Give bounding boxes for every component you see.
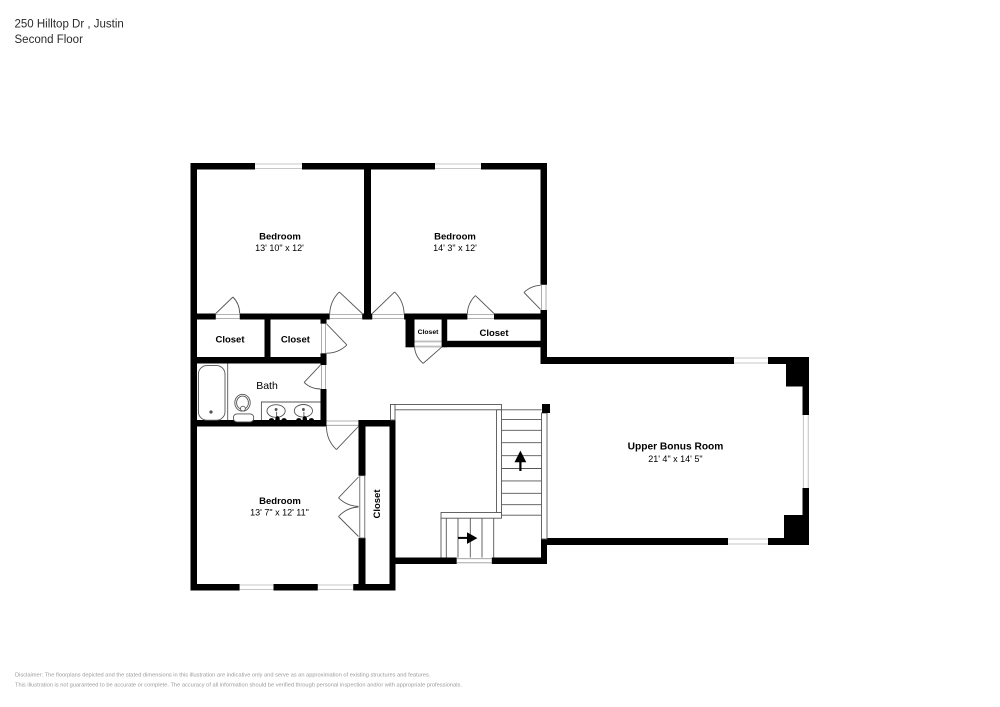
svg-text:Closet: Closet — [215, 334, 245, 345]
svg-text:13' 7" x 12' 11": 13' 7" x 12' 11" — [250, 508, 309, 518]
svg-text:Closet: Closet — [281, 334, 311, 345]
svg-text:Bath: Bath — [256, 380, 278, 392]
svg-text:Bedroom: Bedroom — [259, 496, 301, 507]
svg-text:Bedroom: Bedroom — [259, 232, 301, 243]
svg-text:250 Hilltop Dr , Justin: 250 Hilltop Dr , Justin — [15, 19, 124, 31]
svg-text:Upper Bonus Room: Upper Bonus Room — [628, 441, 724, 452]
svg-text:Closet: Closet — [418, 329, 440, 336]
svg-text:Closet: Closet — [479, 328, 509, 339]
svg-text:Bedroom: Bedroom — [434, 232, 476, 243]
svg-text:21' 4" x 14' 5": 21' 4" x 14' 5" — [648, 454, 702, 464]
svg-text:Second Floor: Second Floor — [15, 34, 84, 46]
svg-text:14' 3" x 12': 14' 3" x 12' — [433, 243, 477, 253]
svg-text:Disclaimer: The floorplans dep: Disclaimer: The floorplans depicted and … — [15, 672, 431, 678]
svg-text:Closet: Closet — [372, 489, 383, 519]
svg-text:This illustration is not guara: This illustration is not guaranteed to b… — [15, 683, 462, 689]
svg-text:13' 10" x 12': 13' 10" x 12' — [255, 243, 304, 253]
